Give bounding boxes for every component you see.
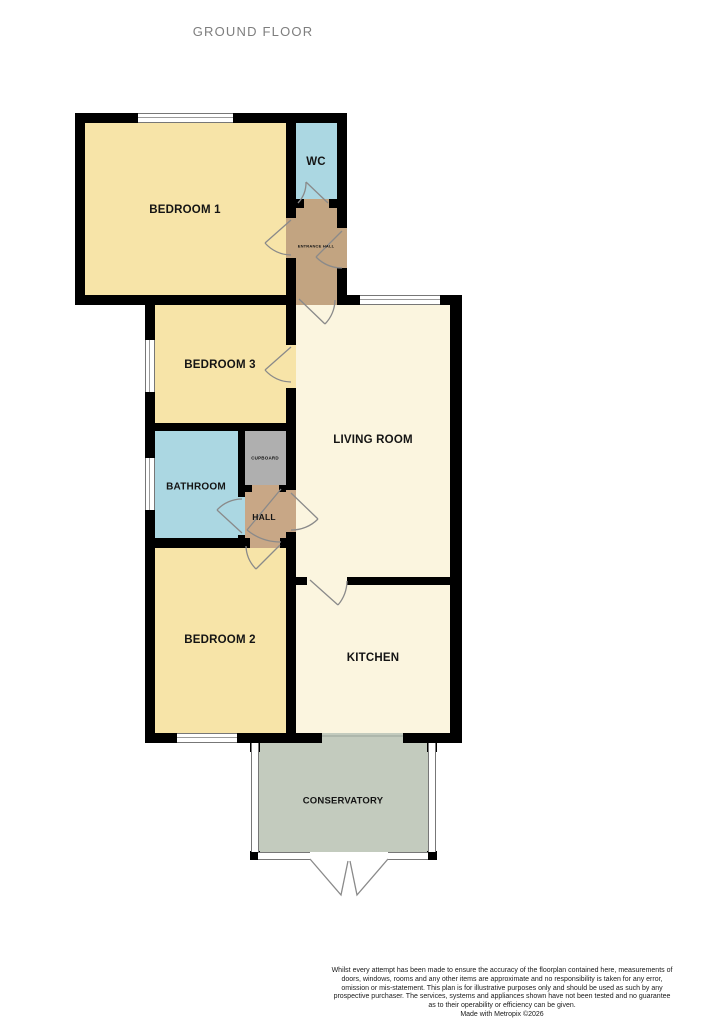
doorway-hall-living (286, 490, 296, 532)
window-glyph (138, 113, 233, 123)
window-glyph (360, 295, 440, 305)
room-label-bedroom-3: BEDROOM 3 (184, 359, 255, 371)
wall-segment (286, 258, 296, 345)
french-doors (310, 859, 388, 895)
doorway-front-entrance (337, 228, 347, 268)
room-label-bedroom-1: BEDROOM 1 (149, 204, 220, 216)
wall-segment (75, 295, 296, 305)
wall-segment (286, 113, 296, 218)
room-label-bedroom-2: BEDROOM 2 (184, 634, 255, 646)
wall-segment (244, 485, 252, 492)
doorway-french-doors (310, 852, 388, 860)
wall-segment (145, 538, 250, 548)
room-label-living-room: LIVING ROOM (333, 434, 413, 446)
conservatory-glazing (251, 743, 259, 852)
footer: Whilst every attempt has been made to en… (331, 967, 673, 1020)
wall-segment (337, 113, 347, 228)
wall-segment (286, 532, 296, 743)
room-label-kitchen: KITCHEN (347, 652, 400, 664)
room-label-bathroom: BATHROOM (166, 482, 226, 493)
wall-segment (279, 485, 286, 492)
doorway-bedroom-3 (286, 345, 296, 388)
wall-segment (347, 577, 462, 585)
conservatory-corner-post (427, 851, 437, 860)
wall-segment (155, 423, 296, 431)
doorway-cupboard (252, 485, 279, 492)
doorway-conservatory (322, 733, 403, 743)
wall-segment (280, 538, 296, 548)
wall-segment (296, 199, 304, 208)
room-label-wc: WC (306, 156, 326, 168)
wall-segment (450, 295, 462, 743)
window-glyph (145, 340, 155, 392)
wall-segment (403, 733, 462, 743)
footer-disclaimer: Whilst every attempt has been made to en… (331, 967, 673, 1011)
room-label-cupboard: CUPBOARD (251, 456, 279, 461)
doorway-kitchen (307, 577, 347, 585)
conservatory-glazing (388, 852, 428, 860)
wall-segment (296, 733, 322, 743)
doorway-bedroom-2 (250, 538, 280, 548)
window-glyph (145, 458, 155, 510)
conservatory-glazing (428, 743, 436, 852)
room-entrance-hall (296, 199, 337, 305)
wall-segment (329, 199, 337, 208)
conservatory-glazing (258, 852, 310, 860)
footer-credit: Made with Metropix ©2026 (331, 1011, 673, 1020)
wall-segment (75, 113, 85, 305)
doorway-bathroom (238, 497, 245, 535)
floorplan-title: GROUND FLOOR (193, 24, 314, 39)
room-label-entrance-hall: ENTRANCE HALL (298, 244, 335, 249)
wall-segment (286, 388, 296, 490)
floorplan-page: GROUND FLOOR (0, 0, 703, 1024)
doorway-bedroom-1 (286, 218, 296, 258)
room-label-hall: HALL (252, 512, 275, 522)
wall-segment (337, 268, 347, 305)
wall-segment (296, 577, 307, 585)
window-glyph (177, 733, 237, 743)
room-label-conservatory: CONSERVATORY (303, 796, 384, 807)
